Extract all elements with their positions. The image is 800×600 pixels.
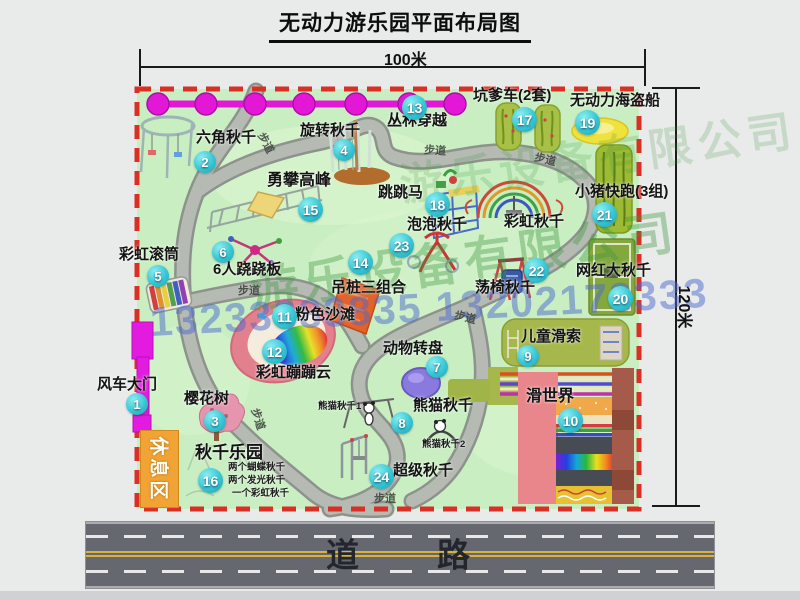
road: 道 路 — [86, 522, 714, 588]
label-super-swing: 超级秋千 — [393, 463, 453, 478]
label-panda-swing-2: 熊猫秋千2 — [422, 440, 465, 450]
badge-17: 17 — [512, 107, 537, 132]
label-animal-turntable: 动物转盘 — [383, 341, 443, 356]
label-pit-cars: 坑爹车(2套) — [473, 88, 551, 103]
badge-13: 13 — [402, 95, 427, 120]
swing-park-note-3: 一个彩虹秋千 — [232, 489, 289, 499]
page-title: 无动力游乐园平面布局图 — [269, 7, 531, 43]
rest-area-label: 休息区 — [146, 436, 173, 502]
walkway-label-4: 步道 — [238, 286, 260, 297]
label-climbing-peak: 勇攀高峰 — [267, 173, 331, 189]
label-bubble-swing: 泡泡秋千 — [407, 217, 467, 232]
badge-5: 5 — [147, 265, 169, 287]
label-rainbow-swing: 彩虹秋千 — [504, 214, 564, 229]
badge-10: 10 — [558, 408, 583, 433]
badge-16: 16 — [198, 468, 223, 493]
label-cherry-tree: 樱花树 — [184, 391, 229, 406]
road-label: 道 路 — [86, 529, 714, 577]
label-swing-park: 秋千乐园 — [195, 444, 263, 461]
rest-area: 休息区 — [140, 430, 179, 508]
badge-1: 1 — [126, 393, 148, 415]
label-panda-swing-1: 熊猫秋千1 — [318, 402, 361, 412]
label-big-swing: 网红大秋千 — [576, 263, 651, 278]
label-slide-world: 滑世界 — [526, 389, 574, 405]
label-hex-swing: 六角秋千 — [196, 130, 256, 145]
label-swing-chair: 荡椅秋千 — [475, 280, 535, 295]
label-panda-swing: 熊猫秋千 — [413, 398, 473, 413]
badge-22: 22 — [524, 258, 549, 283]
label-jumping-horse: 跳跳马 — [378, 185, 423, 200]
width-dimension-label: 100米 — [384, 46, 427, 70]
badge-8: 8 — [391, 412, 413, 434]
label-seesaw-6p: 6人跷跷板 — [213, 262, 281, 277]
badge-11: 11 — [272, 304, 297, 329]
badge-19: 19 — [575, 110, 600, 135]
walkway-label-2: 步道 — [424, 145, 447, 158]
badge-2: 2 — [194, 151, 216, 173]
park-layout-plan: 无动力游乐园平面布局图 100米 120米 休息区 游乐设备有限公司 游乐设备有… — [0, 0, 800, 600]
badge-9: 9 — [517, 345, 539, 367]
badge-18: 18 — [425, 192, 450, 217]
badge-15: 15 — [298, 197, 323, 222]
swing-park-note-2: 两个发光秋千 — [228, 476, 285, 486]
badge-14: 14 — [348, 250, 373, 275]
badge-4: 4 — [333, 139, 355, 161]
badge-20: 20 — [608, 286, 633, 311]
label-pink-beach: 粉色沙滩 — [295, 307, 355, 322]
swing-park-note-1: 两个蝴蝶秋千 — [228, 463, 285, 473]
badge-23: 23 — [389, 233, 414, 258]
label-rainbow-roller: 彩虹滚筒 — [119, 247, 179, 262]
badge-7: 7 — [426, 356, 448, 378]
walkway-label-7: 步道 — [374, 494, 396, 505]
label-pirate-ship: 无动力海盗船 — [570, 93, 660, 108]
label-bounce-cloud: 彩虹蹦蹦云 — [256, 365, 331, 380]
label-piggy-run: 小猪快跑(3组) — [575, 184, 668, 199]
label-rotating-swing: 旋转秋千 — [300, 123, 360, 138]
badge-24: 24 — [369, 464, 394, 489]
badge-21: 21 — [592, 202, 617, 227]
height-dimension-label: 120米 — [674, 277, 698, 337]
badge-3: 3 — [204, 410, 226, 432]
label-hanging-pile: 吊桩三组合 — [331, 280, 406, 295]
badge-12: 12 — [262, 339, 287, 364]
label-kids-zipline: 儿童滑索 — [521, 329, 581, 344]
label-windmill-gate: 风车大门 — [97, 377, 157, 392]
badge-6: 6 — [212, 241, 234, 263]
